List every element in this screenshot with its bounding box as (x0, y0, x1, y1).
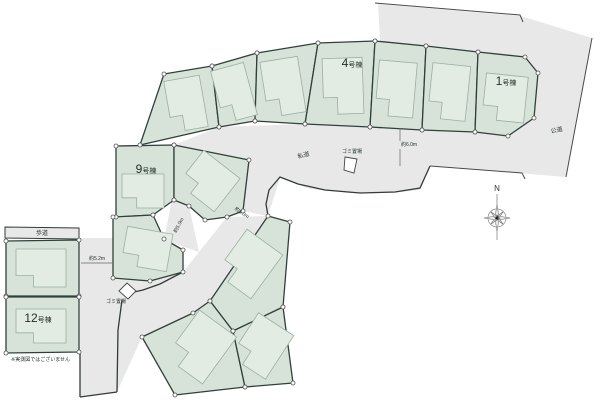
vertex-marker (172, 198, 176, 202)
vertex-marker (303, 122, 307, 126)
vertex-marker (243, 385, 247, 389)
vertex-marker (368, 125, 372, 129)
vertex-marker (210, 64, 214, 68)
vertex-marker (536, 71, 540, 75)
vertex-marker (151, 213, 155, 217)
vertex-marker (162, 72, 166, 76)
vertex-marker (4, 239, 8, 243)
vertex-marker (473, 130, 477, 134)
vertex-marker (255, 51, 259, 55)
vertex-marker (4, 295, 8, 299)
vertex-marker (316, 41, 320, 45)
vertex-marker (476, 50, 480, 54)
vertex-marker (172, 143, 176, 147)
vertex-marker (288, 220, 292, 224)
garbage-spot-label-0: ゴミ置場 (342, 148, 362, 155)
label-dim-5-2m: 約5.2m (89, 255, 105, 262)
site-plan-svg: ゴミ置場ゴミ置場4号棟1号棟9号棟12号棟歩道私道公道約6.0m約5.2m約5.… (0, 0, 600, 403)
vertex-marker (173, 393, 177, 397)
compass-rose: N (484, 184, 510, 240)
vertex-marker (373, 39, 377, 43)
vertex-marker (532, 116, 536, 120)
vertex-marker (191, 311, 195, 315)
site-plan: ゴミ置場ゴミ置場4号棟1号棟9号棟12号棟歩道私道公道約6.0m約5.2m約5.… (0, 0, 600, 403)
sidewalk-label: 歩道 (36, 229, 48, 237)
vertex-marker (111, 276, 115, 280)
garbage-spot-label-1: ゴミ置場 (106, 298, 126, 305)
compass-north-label: N (494, 184, 500, 193)
vertex-marker (181, 270, 185, 274)
vertex-marker (506, 134, 510, 138)
label-dim-6m: 約6.0m (401, 141, 417, 148)
vertex-marker (253, 119, 257, 123)
vertex-marker (138, 143, 142, 147)
vertex-marker (247, 158, 251, 162)
vertex-marker (208, 299, 212, 303)
vertex-marker (77, 295, 81, 299)
vertex-marker (217, 125, 221, 129)
vertex-marker (77, 238, 81, 242)
vertex-marker (420, 128, 424, 132)
vertex-marker (148, 279, 152, 283)
vertex-marker (181, 248, 185, 252)
vertex-marker (225, 215, 229, 219)
vertex-marker (203, 218, 207, 222)
vertex-marker (114, 144, 118, 148)
vertex-marker (140, 335, 144, 339)
vertex-marker (162, 237, 166, 241)
vertex-marker (424, 44, 428, 48)
vertex-marker (187, 204, 191, 208)
vertex-marker (111, 215, 115, 219)
vertex-marker (4, 351, 8, 355)
vertex-marker (291, 381, 295, 385)
vertex-marker (266, 214, 270, 218)
vertex-marker (523, 55, 527, 59)
vertex-marker (231, 329, 235, 333)
vertex-marker (281, 305, 285, 309)
disclaimer: ※実測図ではございません (11, 356, 70, 363)
vertex-marker (77, 350, 81, 354)
